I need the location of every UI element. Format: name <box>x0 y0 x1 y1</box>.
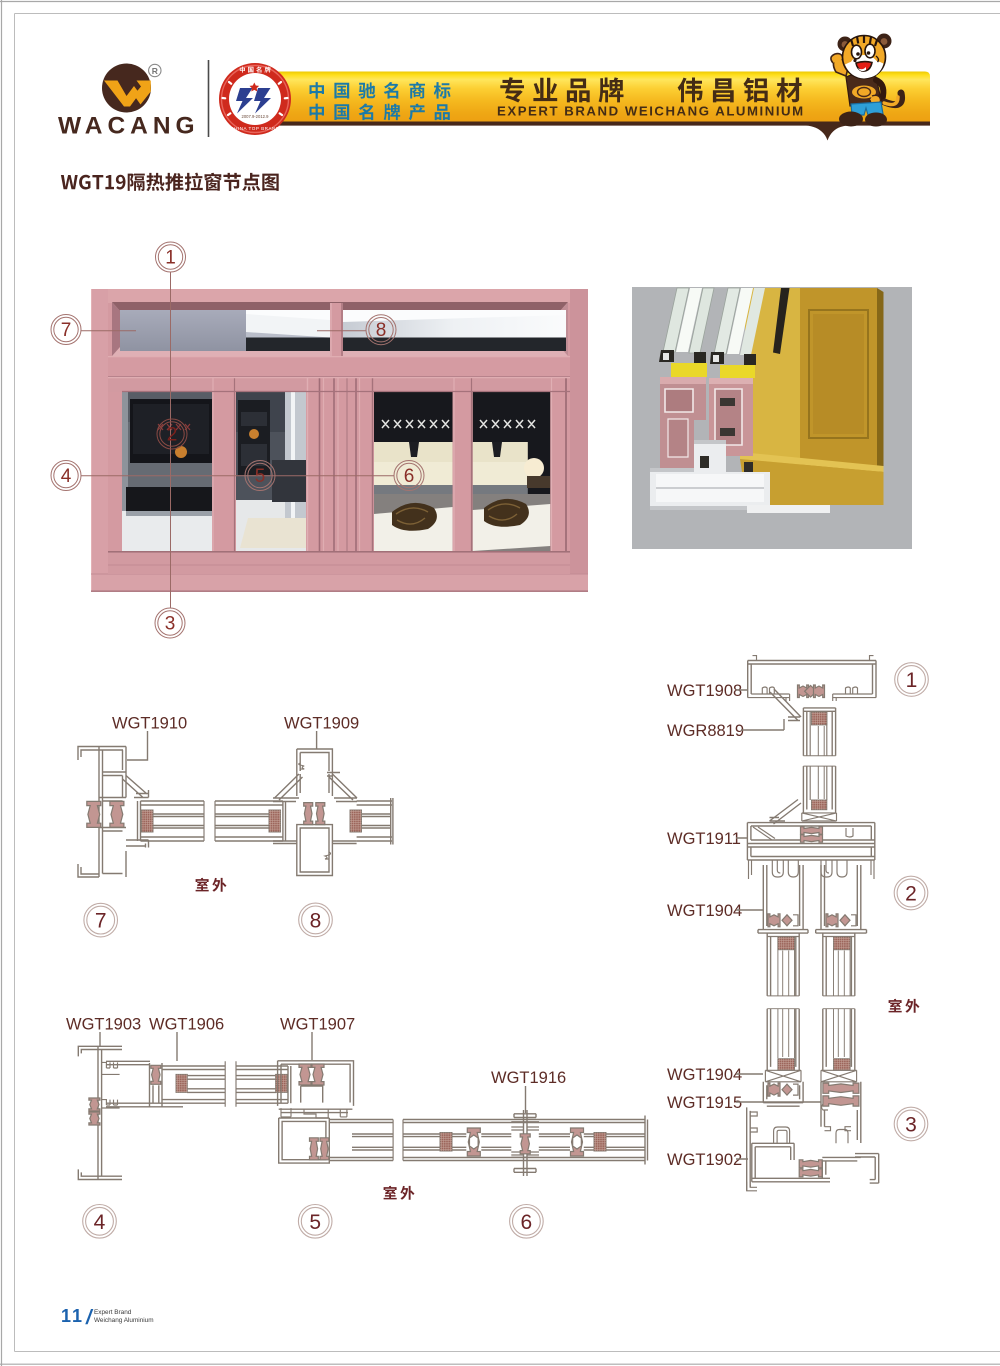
svg-text:2: 2 <box>167 425 178 446</box>
svg-text:WGT1909: WGT1909 <box>284 715 359 733</box>
svg-text:1: 1 <box>906 669 918 692</box>
svg-text:6: 6 <box>521 1211 533 1234</box>
svg-text:7: 7 <box>95 910 107 933</box>
svg-text:WGT1911: WGT1911 <box>667 830 741 848</box>
svg-text:Expert Brand: Expert Brand <box>94 1309 132 1316</box>
svg-text:WGT1904: WGT1904 <box>667 1066 742 1084</box>
svg-text:CHINA TOP BRAND: CHINA TOP BRAND <box>230 126 280 131</box>
svg-text:6: 6 <box>404 466 415 487</box>
svg-text:1: 1 <box>165 248 176 269</box>
svg-text:WACANG: WACANG <box>58 113 200 140</box>
svg-text:WGT1902: WGT1902 <box>667 1151 742 1169</box>
svg-text:WGT1915: WGT1915 <box>667 1094 742 1112</box>
svg-text:5: 5 <box>255 466 266 487</box>
svg-text:Weichang Aluminium: Weichang Aluminium <box>94 1317 154 1324</box>
svg-text:EXPERT BRAND WEICHANG ALUMINIU: EXPERT BRAND WEICHANG ALUMINIUM <box>497 104 805 119</box>
svg-text:5: 5 <box>309 1211 321 1234</box>
svg-text:3: 3 <box>165 614 176 635</box>
svg-text:WGT1906: WGT1906 <box>149 1016 224 1034</box>
svg-text:WGT1907: WGT1907 <box>280 1016 355 1034</box>
svg-text:7: 7 <box>61 320 72 341</box>
svg-text:WGT1904: WGT1904 <box>667 902 742 920</box>
svg-text:11: 11 <box>61 1306 84 1326</box>
svg-text:4: 4 <box>61 466 72 487</box>
svg-text:3: 3 <box>905 1114 917 1137</box>
svg-text:R: R <box>152 66 158 76</box>
svg-text:WGT1916: WGT1916 <box>491 1069 566 1087</box>
svg-text:WGR8819: WGR8819 <box>667 722 744 740</box>
svg-text:8: 8 <box>376 320 387 341</box>
svg-text:WGT1910: WGT1910 <box>112 715 187 733</box>
svg-text:/: / <box>85 1307 94 1329</box>
svg-text:4: 4 <box>94 1211 106 1234</box>
svg-text:2: 2 <box>905 883 917 906</box>
svg-text:8: 8 <box>310 909 322 932</box>
svg-text:2007.9-2012.9: 2007.9-2012.9 <box>241 114 269 119</box>
svg-text:WGT1903: WGT1903 <box>66 1016 141 1034</box>
svg-text:WGT1908: WGT1908 <box>667 682 742 700</box>
